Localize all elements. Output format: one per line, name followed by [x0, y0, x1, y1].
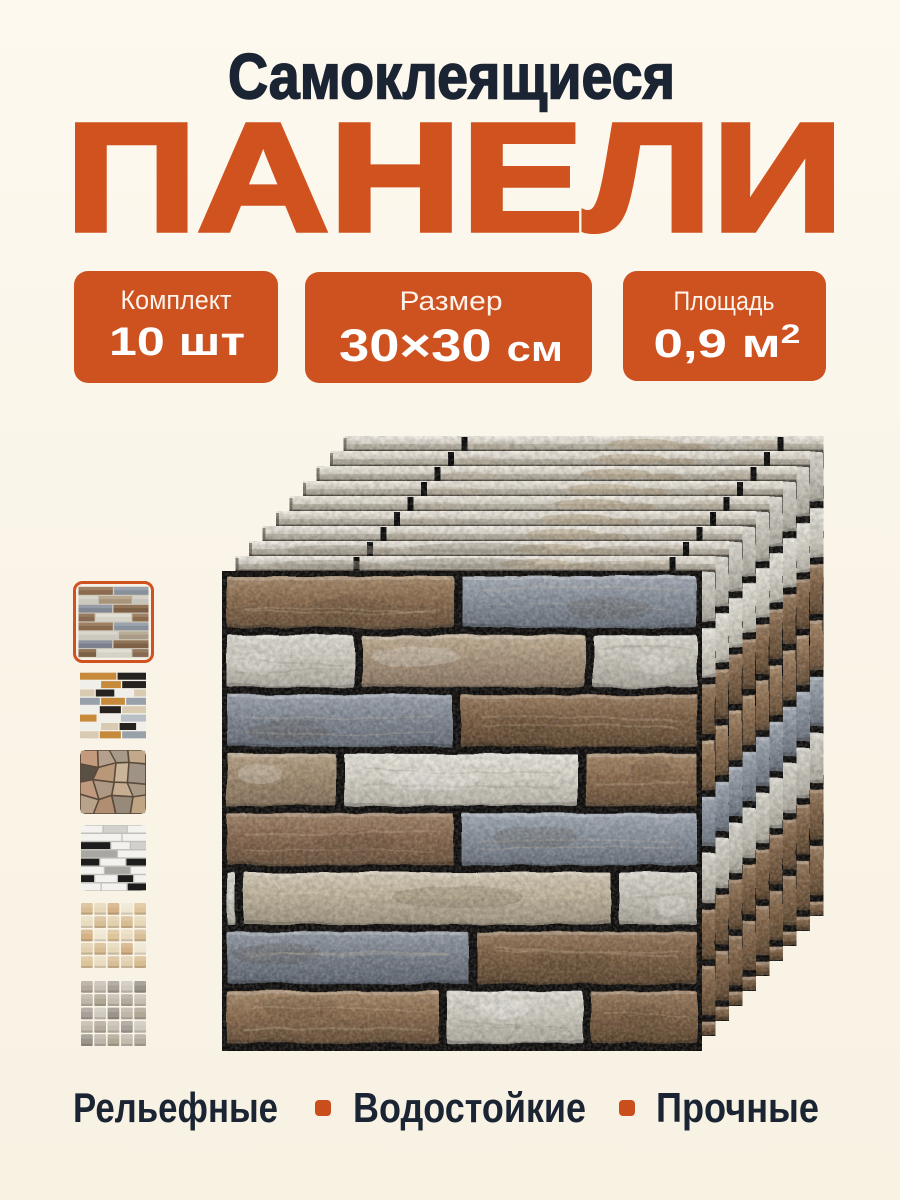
svg-text:ПАНЕЛИ: ПАНЕЛИ: [66, 92, 844, 264]
svg-text:Прочные: Прочные: [656, 1084, 819, 1131]
svg-text:Рельефные: Рельефные: [73, 1084, 278, 1131]
svg-text:Размер: Размер: [400, 286, 503, 316]
svg-text:Комплект: Комплект: [121, 285, 232, 315]
svg-text:Водостойкие: Водостойкие: [353, 1084, 586, 1131]
svg-text:10 шт: 10 шт: [109, 320, 245, 364]
svg-text:0,9 м2: 0,9 м2: [654, 319, 801, 366]
svg-text:30×30 см: 30×30 см: [339, 320, 563, 371]
svg-text:Площадь: Площадь: [674, 286, 775, 316]
